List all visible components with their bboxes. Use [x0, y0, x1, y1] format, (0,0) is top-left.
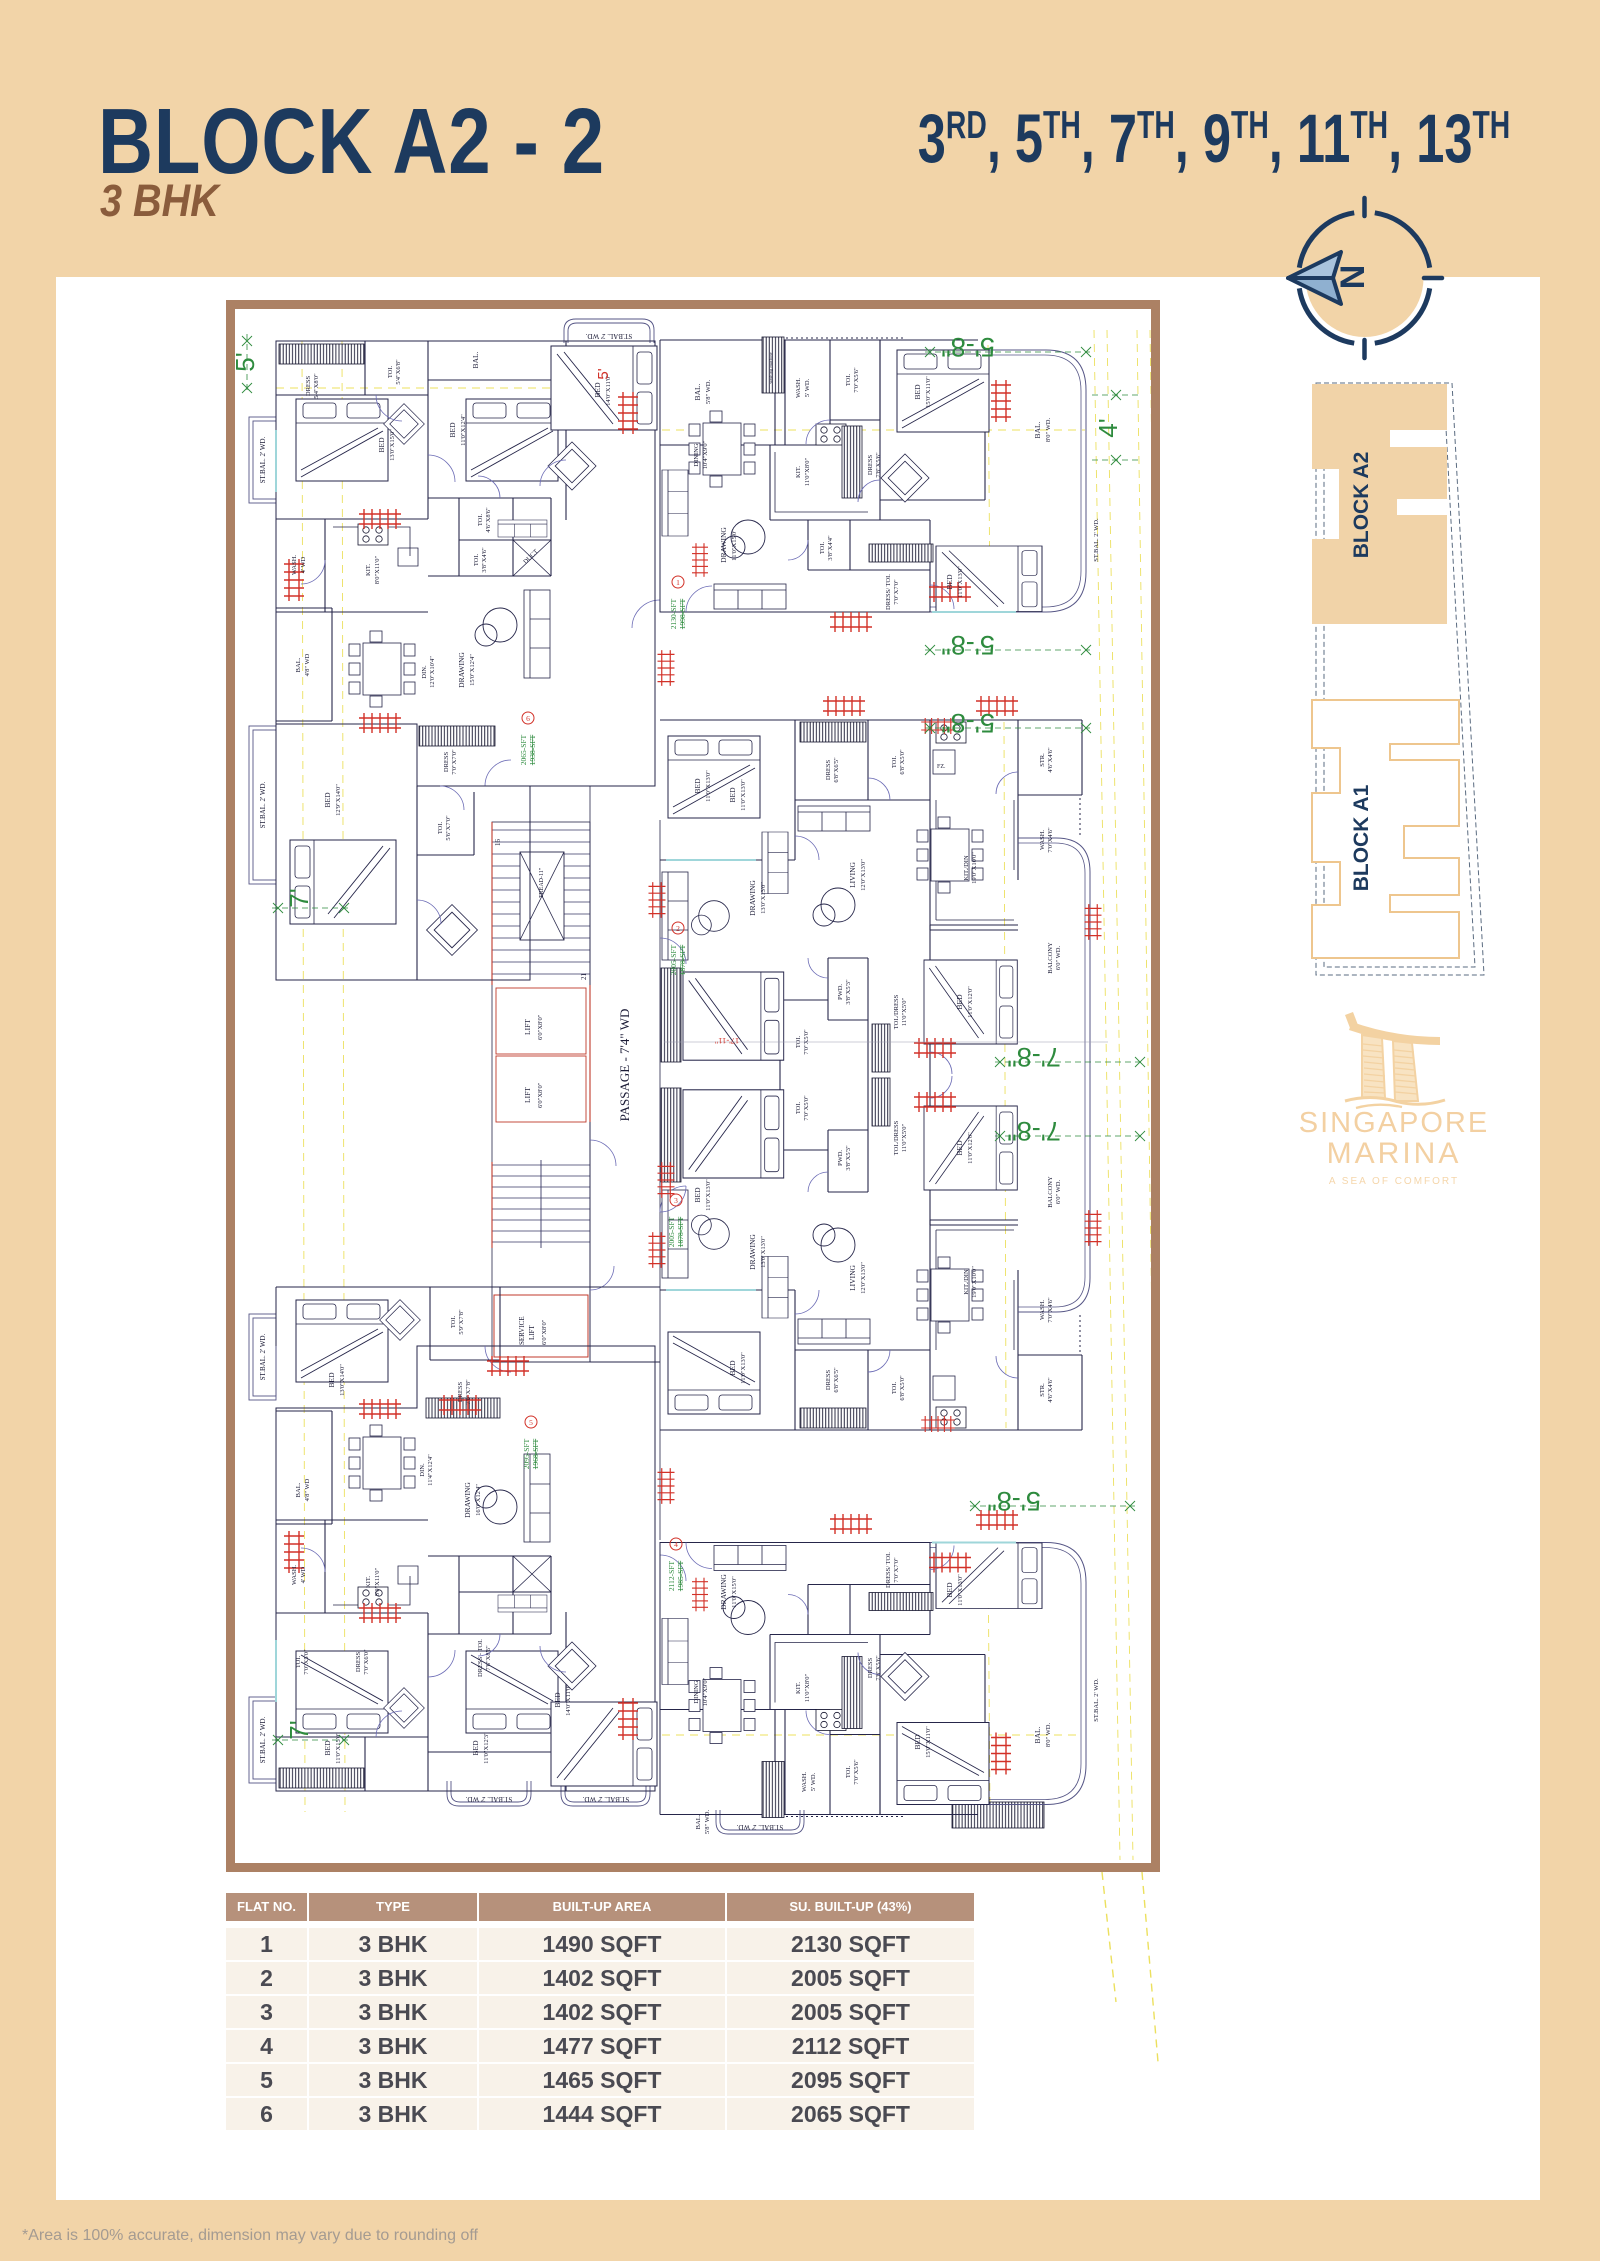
svg-text:BED: BED [913, 1734, 922, 1750]
svg-text:TOI.: TOI. [891, 755, 898, 768]
svg-text:BAL.: BAL. [471, 351, 480, 368]
svg-text:15'0"X11'0": 15'0"X11'0" [925, 1726, 932, 1758]
svg-text:6'8"X6'5": 6'8"X6'5" [833, 1367, 840, 1393]
svg-text:5'-8": 5'-8" [941, 708, 995, 738]
svg-text:SERVICE: SERVICE [518, 1316, 526, 1345]
svg-text:7'0"X4'6": 7'0"X4'6" [1047, 1297, 1054, 1323]
svg-text:11'4"X12'4": 11'4"X12'4" [427, 1454, 434, 1486]
svg-text:BALCONY: BALCONY [1047, 1176, 1054, 1208]
svg-text:8'0"X11'0": 8'0"X11'0" [374, 1567, 381, 1596]
svg-text:BAL.: BAL. [1033, 421, 1042, 438]
svg-text:BED: BED [728, 787, 737, 803]
svg-text:2095-SFT: 2095-SFT [522, 1438, 531, 1469]
svg-text:5': 5' [595, 368, 612, 379]
svg-text:2005-SFT: 2005-SFT [667, 1216, 676, 1247]
svg-text:5'4"X8'0": 5'4"X8'0" [313, 373, 320, 399]
svg-text:7'0"X5'0": 7'0"X5'0" [803, 1095, 810, 1121]
svg-text:KIT.: KIT. [795, 1682, 802, 1694]
svg-text:BED: BED [913, 384, 922, 400]
svg-text:4': 4' [1093, 418, 1123, 437]
svg-text:4: 4 [674, 1540, 678, 1549]
svg-text:1968-SFT: 1968-SFT [531, 1438, 540, 1469]
svg-text:TOI./DRESS: TOI./DRESS [893, 994, 900, 1029]
svg-text:TOI./DRESS: TOI./DRESS [893, 1120, 900, 1155]
svg-text:DRESS: DRESS [825, 1370, 832, 1391]
svg-text:6'0"X8'0": 6'0"X8'0" [537, 1082, 544, 1108]
svg-text:11'0"X5'0": 11'0"X5'0" [901, 997, 908, 1026]
svg-text:PWD.: PWD. [837, 984, 844, 1000]
svg-text:BED: BED [693, 1187, 702, 1203]
svg-text:10'4"X9'0": 10'4"X9'0" [702, 440, 709, 469]
svg-text:6'8"X5'0": 6'8"X5'0" [899, 1375, 906, 1401]
svg-text:STR.: STR. [1039, 753, 1046, 767]
svg-text:BED: BED [471, 1740, 480, 1756]
svg-text:KIT.: KIT. [795, 466, 802, 478]
svg-text:11'0"X5'0": 11'0"X5'0" [901, 1123, 908, 1152]
svg-text:3'8"X4'4": 3'8"X4'4" [827, 535, 834, 561]
svg-text:TOI.: TOI. [819, 541, 826, 554]
svg-text:6'0"X8'0": 6'0"X8'0" [541, 1319, 548, 1345]
svg-text:11'0"X8'0": 11'0"X8'0" [804, 1673, 811, 1702]
svg-text:4'6"X8'6": 4'6"X8'6" [485, 507, 492, 533]
svg-text:TOI.: TOI. [795, 1101, 802, 1114]
svg-text:BED: BED [693, 778, 702, 794]
svg-text:7': 7' [284, 1720, 314, 1739]
svg-text:BAL.: BAL. [1033, 1726, 1042, 1743]
svg-text:BED: BED [323, 792, 332, 808]
svg-text:DRAWING: DRAWING [748, 880, 757, 916]
svg-text:13'0"X15'0": 13'0"X15'0" [389, 429, 396, 461]
svg-text:BED: BED [448, 422, 457, 438]
svg-text:TOI.: TOI. [845, 373, 852, 386]
svg-text:DRAWING: DRAWING [463, 1482, 472, 1518]
svg-text:BLOCK A2: BLOCK A2 [1350, 452, 1373, 559]
svg-text:7'8"X5'6": 7'8"X5'6" [875, 1655, 882, 1681]
svg-text:6'8"X5'0": 6'8"X5'0" [899, 749, 906, 775]
svg-text:TOI.: TOI. [387, 365, 394, 378]
svg-text:1985-SFT: 1985-SFT [676, 1560, 685, 1591]
svg-text:12'0"X13'0": 12'0"X13'0" [860, 859, 867, 891]
svg-text:16'0"X12'4": 16'0"X12'4" [475, 1484, 482, 1516]
svg-text:DRAWING: DRAWING [719, 1574, 728, 1610]
svg-text:13'0"X14'0": 13'0"X14'0" [339, 1364, 346, 1396]
svg-text:TOI.: TOI. [477, 513, 484, 526]
svg-text:4' WD: 4' WD [300, 556, 307, 573]
svg-text:BED: BED [728, 1360, 737, 1376]
svg-text:5'8" WD.: 5'8" WD. [705, 379, 712, 404]
svg-text:5'-8": 5'-8" [941, 630, 995, 660]
svg-text:5' WD.: 5' WD. [804, 378, 811, 397]
svg-text:ST.BAL. 2' WD.: ST.BAL. 2' WD. [585, 332, 632, 340]
svg-text:7'0"X4'6": 7'0"X4'6" [1047, 827, 1054, 853]
svg-text:7'0"X5'0": 7'0"X5'0" [303, 1649, 310, 1675]
svg-text:4'6"X4'6": 4'6"X4'6" [1047, 747, 1054, 773]
svg-text:LIFT: LIFT [523, 1087, 532, 1103]
svg-text:WASH.: WASH. [291, 1565, 298, 1585]
svg-text:13'0"X13'0": 13'0"X13'0" [760, 882, 767, 914]
svg-text:19'0"X10'0": 19'0"X10'0" [971, 1266, 978, 1298]
svg-text:8'0"X11'0": 8'0"X11'0" [374, 555, 381, 584]
svg-text:5'-8": 5'-8" [941, 332, 995, 362]
svg-text:7'-8": 7'-8" [1007, 1116, 1061, 1146]
svg-text:11'0"X13'0": 11'0"X13'0" [705, 1179, 712, 1211]
svg-text:TREAD-11": TREAD-11" [539, 867, 545, 898]
svg-text:1878-SFT: 1878-SFT [678, 944, 687, 975]
svg-text:DRESS: DRESS [457, 1382, 464, 1403]
svg-text:14'0"X11'0": 14'0"X11'0" [565, 1684, 572, 1716]
svg-text:3'8"X5'3": 3'8"X5'3" [845, 979, 852, 1005]
svg-text:11'0"X13'0": 11'0"X13'0" [740, 1352, 747, 1384]
svg-text:17'-11": 17'-11" [715, 1036, 740, 1046]
svg-text:7'0"X5'6": 7'0"X5'6" [853, 1759, 860, 1785]
svg-text:washing machine: washing machine [768, 352, 773, 383]
svg-text:ST.BAL. 2' WD.: ST.BAL. 2' WD. [259, 781, 267, 828]
svg-text:4' WD: 4' WD [300, 1566, 307, 1583]
svg-text:BED: BED [593, 382, 602, 398]
svg-text:5: 5 [529, 1418, 533, 1427]
svg-text:15'0"X12'4": 15'0"X12'4" [469, 654, 476, 686]
svg-text:11'0"X13'0": 11'0"X13'0" [740, 779, 747, 811]
svg-text:7'0"X7'0": 7'0"X7'0" [451, 749, 458, 775]
svg-text:1878-SFT: 1878-SFT [676, 1216, 685, 1247]
svg-text:KIT./DIN: KIT./DIN [963, 855, 970, 881]
svg-text:DRAWING: DRAWING [748, 1234, 757, 1270]
svg-text:DRESS: DRESS [867, 455, 874, 476]
svg-text:11'0"X12'0": 11'0"X12'0" [967, 986, 974, 1018]
svg-text:11'0"X13'0": 11'0"X13'0" [957, 566, 964, 598]
svg-text:11'0"X12'0": 11'0"X12'0" [967, 1132, 974, 1164]
svg-text:5'8" WD.: 5'8" WD. [704, 1809, 711, 1834]
svg-text:DIN.: DIN. [419, 1463, 426, 1477]
svg-text:ST.BAL. 2' WD.: ST.BAL. 2' WD. [1093, 518, 1100, 562]
svg-text:BED: BED [323, 1740, 332, 1756]
svg-text:2065-SFT: 2065-SFT [519, 734, 528, 765]
svg-text:TOI.: TOI. [891, 1381, 898, 1394]
svg-text:BLOCK A1: BLOCK A1 [1350, 784, 1373, 891]
svg-text:KIT./DIN: KIT./DIN [963, 1269, 970, 1295]
svg-text:BED: BED [945, 574, 954, 590]
svg-text:N: N [1334, 265, 1372, 290]
svg-text:16: 16 [494, 839, 502, 847]
svg-text:A SEA OF COMFORT: A SEA OF COMFORT [1329, 1176, 1459, 1187]
svg-text:4'8" WD: 4'8" WD [304, 1478, 311, 1501]
svg-text:BED: BED [327, 1372, 336, 1388]
svg-text:6'0"X8'0": 6'0"X8'0" [537, 1014, 544, 1040]
svg-text:5': 5' [235, 352, 260, 371]
svg-text:DINING: DINING [693, 443, 700, 466]
svg-text:7'8"X5'6": 7'8"X5'6" [875, 452, 882, 478]
svg-text:BAL.: BAL. [695, 1814, 702, 1829]
svg-text:ST.BAL. 2' WD.: ST.BAL. 2' WD. [259, 436, 267, 483]
svg-text:5'4"X6'8": 5'4"X6'8" [395, 359, 402, 385]
svg-text:KIT.: KIT. [365, 1576, 372, 1588]
svg-text:6'0" WD.: 6'0" WD. [1055, 945, 1062, 970]
svg-text:LIFT: LIFT [528, 1325, 536, 1341]
svg-text:1938-SFT: 1938-SFT [528, 734, 537, 765]
svg-text:MARINA: MARINA [1327, 1137, 1462, 1170]
svg-text:ST.BAL. 2' WD.: ST.BAL. 2' WD. [1093, 1678, 1100, 1722]
svg-text:WASH.: WASH. [1039, 1300, 1046, 1320]
svg-text:BED: BED [945, 1582, 954, 1598]
svg-text:BALCONY: BALCONY [1047, 942, 1054, 974]
svg-text:5' WD.: 5' WD. [810, 1772, 817, 1791]
svg-text:DRESS: DRESS [825, 760, 832, 781]
svg-text:DIN.: DIN. [421, 665, 428, 679]
svg-text:BED: BED [377, 437, 386, 453]
svg-text:3'8"X4'6": 3'8"X4'6" [481, 547, 488, 573]
svg-text:TOI.: TOI. [450, 1315, 457, 1328]
svg-text:LIFT: LIFT [523, 1019, 532, 1035]
svg-text:12'9"X14'0": 12'9"X14'0" [335, 784, 342, 816]
svg-text:7'0"X7'0": 7'0"X7'0" [893, 1557, 900, 1583]
svg-text:5'6"X7'0": 5'6"X7'0" [445, 815, 452, 841]
svg-text:8'0" WD.: 8'0" WD. [1045, 1722, 1052, 1747]
svg-text:WASH.: WASH. [1039, 830, 1046, 850]
svg-text:ST.BAL. 2' WD.: ST.BAL. 2' WD. [465, 1795, 512, 1803]
svg-text:4'6"X4'6": 4'6"X4'6" [1047, 1377, 1054, 1403]
svg-text:BED: BED [955, 994, 964, 1010]
svg-text:TOI.: TOI. [437, 821, 444, 834]
svg-text:3: 3 [674, 1196, 678, 1205]
svg-text:BED: BED [553, 1692, 562, 1708]
svg-text:7'0"X5'6": 7'0"X5'6" [853, 367, 860, 393]
svg-text:11'0"X12'4": 11'0"X12'4" [460, 414, 467, 446]
svg-text:ST.BAL. 2' WD.: ST.BAL. 2' WD. [582, 1795, 629, 1803]
svg-text:PWD.: PWD. [837, 1150, 844, 1166]
svg-text:12'0"X10'4": 12'0"X10'4" [429, 656, 436, 688]
svg-text:DRESS: DRESS [443, 752, 450, 773]
svg-text:8'0" WD.: 8'0" WD. [1045, 417, 1052, 442]
svg-text:ST.BAL. 2' WD.: ST.BAL. 2' WD. [259, 1716, 267, 1763]
svg-text:DRAWING: DRAWING [457, 652, 466, 688]
svg-text:ST.BAL. 2' WD.: ST.BAL. 2' WD. [736, 1823, 783, 1831]
svg-text:DRESS: DRESS [867, 1658, 874, 1679]
svg-text:TOI.: TOI. [845, 1765, 852, 1778]
svg-text:PASSAGE - 7'4" WD: PASSAGE - 7'4" WD [617, 1009, 632, 1122]
svg-text:4'8" WD: 4'8" WD [304, 653, 311, 676]
svg-text:ST.BAL. 2' WD.: ST.BAL. 2' WD. [259, 1333, 267, 1380]
svg-text:7'0"X7'0": 7'0"X7'0" [893, 579, 900, 605]
svg-text:12'0"X13'0": 12'0"X13'0" [860, 1262, 867, 1294]
svg-text:LIVING: LIVING [848, 1265, 857, 1291]
svg-text:21: 21 [580, 973, 588, 981]
svg-text:6: 6 [526, 714, 530, 723]
svg-text:6'0" WD.: 6'0" WD. [1055, 1179, 1062, 1204]
svg-text:2: 2 [676, 924, 680, 933]
svg-text:2005-SFT: 2005-SFT [669, 944, 678, 975]
svg-text:15'0"X11'0": 15'0"X11'0" [925, 376, 932, 408]
svg-text:LIVING: LIVING [848, 862, 857, 888]
svg-text:DRESS: DRESS [305, 376, 312, 397]
svg-text:BAL.: BAL. [693, 383, 702, 400]
svg-text:5'9"X7'8": 5'9"X7'8" [458, 1309, 465, 1335]
svg-text:3'8"X5'3": 3'8"X5'3" [845, 1145, 852, 1171]
svg-text:BAL.: BAL. [295, 657, 302, 672]
svg-text:11'0"X15'0": 11'0"X15'0" [731, 1576, 738, 1608]
svg-text:5'-8": 5'-8" [987, 1486, 1041, 1516]
svg-text:11'0"X8'0": 11'0"X8'0" [804, 457, 811, 486]
svg-text:7'8"X7'8": 7'8"X7'8" [465, 1379, 472, 1405]
svg-text:STR.: STR. [1039, 1383, 1046, 1397]
svg-text:TOI.: TOI. [295, 1655, 302, 1668]
svg-text:7'6"X8'6": 7'6"X8'6" [485, 1645, 492, 1671]
svg-text:2130-SFT: 2130-SFT [669, 598, 678, 629]
svg-text:1: 1 [676, 578, 680, 587]
svg-text:TOI.: TOI. [473, 553, 480, 566]
svg-text:11'0"X13'0": 11'0"X13'0" [957, 1574, 964, 1606]
svg-text:1998-SFT: 1998-SFT [678, 598, 687, 629]
svg-text:WASH.: WASH. [291, 555, 298, 575]
svg-text:BED: BED [955, 1140, 964, 1156]
svg-text:13'0"X13'0": 13'0"X13'0" [760, 1236, 767, 1268]
svg-text:SINGAPORE: SINGAPORE [1299, 1107, 1489, 1139]
svg-text:DRESS: DRESS [355, 1652, 362, 1673]
svg-text:11'0"X15'0": 11'0"X15'0" [731, 529, 738, 561]
svg-text:WASH.: WASH. [801, 1772, 808, 1792]
svg-text:DRESS/ TOI.: DRESS/ TOI. [885, 574, 892, 610]
svg-text:7'0"X6'0": 7'0"X6'0" [363, 1649, 370, 1675]
svg-text:FZ.: FZ. [937, 764, 946, 770]
svg-text:7'-8": 7'-8" [1007, 1042, 1061, 1072]
svg-text:7': 7' [284, 888, 314, 907]
svg-text:19'0"X10'0": 19'0"X10'0" [971, 852, 978, 884]
svg-text:KIT.: KIT. [365, 564, 372, 576]
svg-text:10'4"X9'0": 10'4"X9'0" [702, 1677, 709, 1706]
svg-text:DRESS/ TOI.: DRESS/ TOI. [885, 1552, 892, 1588]
svg-text:BAL.: BAL. [295, 1482, 302, 1497]
svg-text:WASH.: WASH. [795, 378, 802, 398]
svg-text:2112-SFT: 2112-SFT [667, 1561, 676, 1592]
svg-text:11'0"X12'3": 11'0"X12'3" [483, 1732, 490, 1764]
svg-text:DRAWING: DRAWING [719, 527, 728, 563]
svg-text:6'8"X6'5": 6'8"X6'5" [833, 757, 840, 783]
svg-text:11'0"X13'0": 11'0"X13'0" [705, 770, 712, 802]
svg-text:DRESS - TOI.: DRESS - TOI. [477, 1639, 484, 1677]
svg-text:DINING: DINING [693, 1680, 700, 1703]
